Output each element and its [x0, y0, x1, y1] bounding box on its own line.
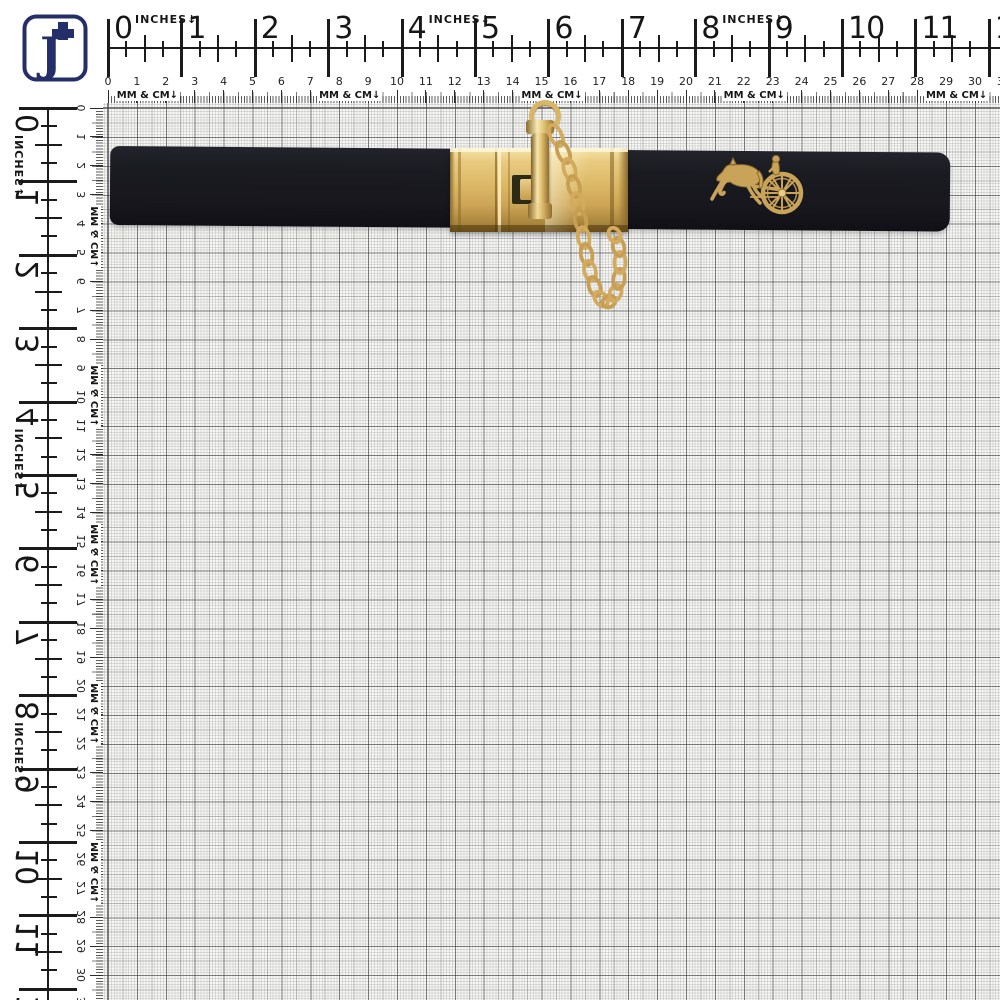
cm-number: 26 — [849, 75, 869, 88]
cm-number: 29 — [936, 75, 956, 88]
cm-number: 18 — [75, 618, 88, 638]
cm-number: 8 — [329, 75, 349, 88]
inch-number: 2 — [11, 261, 46, 279]
inch-half-tick — [951, 35, 953, 62]
inch-major-tick — [621, 19, 624, 77]
inch-quarter-tick — [41, 749, 57, 751]
inch-major-tick — [19, 401, 77, 404]
inch-quarter-tick — [41, 235, 57, 237]
cm-number: 10 — [75, 387, 88, 407]
inch-major-tick — [841, 19, 844, 77]
buckle-groove — [508, 148, 510, 232]
cm-tick — [90, 975, 103, 976]
cm-tick — [281, 90, 282, 103]
inch-quarter-tick — [41, 382, 57, 384]
carriage-wheel — [763, 174, 801, 212]
buckle-fold-line — [458, 148, 461, 232]
cm-tick — [90, 194, 103, 195]
inch-number: 7 — [11, 628, 46, 646]
cm-number: 10 — [387, 75, 407, 88]
inch-half-tick — [731, 35, 733, 62]
inch-quarter-tick — [713, 41, 715, 57]
inch-quarter-tick — [41, 639, 57, 641]
inch-half-tick — [35, 217, 62, 219]
cm-tick — [310, 90, 311, 103]
chain-link — [606, 226, 623, 245]
cm-number: 7 — [75, 300, 88, 320]
cm-tick — [483, 90, 484, 103]
inch-major-tick — [547, 19, 550, 77]
inch-half-tick — [35, 584, 62, 586]
cm-tick — [830, 90, 831, 103]
cm-number: 31 — [75, 994, 88, 1000]
left-ruler-strip: 0123456789101112INCHES↓INCHES↓INCHES↓012… — [0, 108, 103, 1000]
inch-quarter-tick — [419, 41, 421, 57]
cm-number: 2 — [156, 75, 176, 88]
cm-number: 22 — [75, 734, 88, 754]
inch-number: 6 — [554, 11, 572, 46]
inch-half-tick — [364, 35, 366, 62]
cm-tick — [90, 772, 103, 773]
inch-half-tick — [35, 511, 62, 513]
cm-number: 31 — [994, 75, 1000, 88]
cm-number: 17 — [589, 75, 609, 88]
cm-number: 19 — [647, 75, 667, 88]
inch-quarter-tick — [933, 41, 935, 57]
inch-major-tick — [19, 621, 77, 624]
inch-number: 3 — [334, 11, 352, 46]
cm-tick — [108, 90, 109, 103]
cm-tick — [90, 512, 103, 513]
inch-major-tick — [327, 19, 330, 77]
cm-number: 28 — [907, 75, 927, 88]
cm-number: 12 — [445, 75, 465, 88]
cm-tick — [90, 281, 103, 282]
inch-quarter-tick — [41, 602, 57, 604]
cm-number: 30 — [965, 75, 985, 88]
cm-tick — [90, 599, 103, 600]
inch-quarter-tick — [125, 41, 127, 57]
inch-number: 0 — [11, 114, 46, 132]
cm-number: 25 — [821, 75, 841, 88]
inch-quarter-tick — [566, 41, 568, 57]
inch-half-tick — [35, 437, 62, 439]
cm-number: 13 — [75, 474, 88, 494]
cm-number: 11 — [416, 75, 436, 88]
cm-number: 28 — [75, 907, 88, 927]
inch-quarter-tick — [41, 969, 57, 971]
cm-number: 16 — [75, 560, 88, 580]
inch-quarter-tick — [41, 933, 57, 935]
cm-number: 0 — [98, 75, 118, 88]
cm-number: 6 — [271, 75, 291, 88]
inch-quarter-tick — [41, 492, 57, 494]
inch-quarter-tick — [41, 676, 57, 678]
cm-tick — [194, 90, 195, 103]
cm-tick — [90, 483, 103, 484]
cm-number: 5 — [75, 243, 88, 263]
cm-number: 14 — [75, 503, 88, 523]
inch-half-tick — [144, 35, 146, 62]
cm-number: 23 — [75, 763, 88, 783]
logo-cross-stem — [58, 22, 68, 40]
inch-number: 2 — [261, 11, 279, 46]
buckle-crease-dark — [495, 148, 497, 232]
inch-major-tick — [19, 107, 77, 110]
inch-number: 4 — [11, 408, 46, 426]
inches-unit-label: INCHES↓ — [722, 13, 784, 26]
inch-quarter-tick — [41, 566, 57, 568]
buckle-chain — [535, 95, 630, 330]
cm-tick — [397, 90, 398, 103]
inch-major-tick — [914, 19, 917, 77]
cm-number: 22 — [734, 75, 754, 88]
cm-number: 27 — [75, 878, 88, 898]
mm-cm-unit-label: MM & CM↓ — [90, 682, 101, 745]
inch-major-tick — [19, 547, 77, 550]
cm-number: 2 — [75, 156, 88, 176]
cm-tick — [714, 90, 715, 103]
cm-tick — [425, 90, 426, 103]
inch-major-tick — [19, 180, 77, 183]
inch-quarter-tick — [41, 823, 57, 825]
inch-major-tick — [19, 768, 77, 771]
cm-number: 13 — [474, 75, 494, 88]
cm-tick — [90, 454, 103, 455]
inch-quarter-tick — [41, 456, 57, 458]
cm-tick — [252, 90, 253, 103]
inch-major-tick — [19, 988, 77, 991]
horse-figure — [712, 158, 763, 203]
cm-tick — [90, 946, 103, 947]
inch-number: 6 — [11, 554, 46, 572]
cm-number: 23 — [763, 75, 783, 88]
cm-tick — [90, 339, 103, 340]
cm-number: 19 — [75, 647, 88, 667]
cm-tick — [90, 310, 103, 311]
cm-number: 4 — [214, 75, 234, 88]
cm-tick — [888, 90, 889, 103]
ruler-baseline — [108, 47, 1000, 49]
inch-quarter-tick — [309, 41, 311, 57]
cm-number: 6 — [75, 271, 88, 291]
carriage-driver — [769, 155, 780, 175]
cm-number: 5 — [243, 75, 263, 88]
cm-number: 18 — [618, 75, 638, 88]
cm-tick — [512, 90, 513, 103]
inch-number: 8 — [11, 701, 46, 719]
inch-quarter-tick — [41, 896, 57, 898]
inch-number: 0 — [114, 11, 132, 46]
cm-number: 24 — [792, 75, 812, 88]
horse-carriage-emblem-icon — [710, 149, 812, 217]
cm-number: 20 — [676, 75, 696, 88]
cm-number: 8 — [75, 329, 88, 349]
inch-quarter-tick — [602, 41, 604, 57]
inch-major-tick — [19, 327, 77, 330]
buckle-left-edge — [450, 148, 455, 232]
inch-quarter-tick — [456, 41, 458, 57]
inch-major-tick — [768, 19, 771, 77]
inch-quarter-tick — [199, 41, 201, 57]
inch-major-tick — [19, 254, 77, 257]
inch-quarter-tick — [41, 309, 57, 311]
inch-quarter-tick — [382, 41, 384, 57]
inch-major-tick — [19, 841, 77, 844]
cm-number: 30 — [75, 965, 88, 985]
inch-major-tick — [474, 19, 477, 77]
cm-tick — [917, 90, 918, 103]
mm-cm-unit-label: MM & CM↓ — [318, 90, 381, 101]
inch-half-tick — [584, 35, 586, 62]
inch-half-tick — [511, 35, 513, 62]
cm-number: 15 — [532, 75, 552, 88]
cm-tick — [859, 90, 860, 103]
mm-cm-unit-label: MM & CM↓ — [90, 205, 101, 268]
inch-major-tick — [107, 19, 110, 77]
cm-number: 21 — [75, 705, 88, 725]
inch-half-tick — [217, 35, 219, 62]
inch-number: 12 — [11, 995, 46, 1000]
inch-quarter-tick — [896, 41, 898, 57]
inch-half-tick — [804, 35, 806, 62]
inches-unit-label: INCHES↓ — [13, 429, 26, 491]
cm-tick — [90, 136, 103, 137]
cm-number: 9 — [75, 358, 88, 378]
inch-major-tick — [180, 19, 183, 77]
cm-number: 9 — [358, 75, 378, 88]
cm-number: 26 — [75, 849, 88, 869]
inch-number: 7 — [628, 11, 646, 46]
inch-major-tick — [694, 19, 697, 77]
inch-major-tick — [254, 19, 257, 77]
inch-quarter-tick — [749, 41, 751, 57]
cm-number: 4 — [75, 214, 88, 234]
cm-number: 17 — [75, 589, 88, 609]
cm-number: 15 — [75, 532, 88, 552]
inch-half-tick — [35, 951, 62, 953]
inch-half-tick — [878, 35, 880, 62]
cm-number: 11 — [75, 416, 88, 436]
mm-cm-unit-label: MM & CM↓ — [90, 364, 101, 427]
inch-major-tick — [19, 914, 77, 917]
inch-quarter-tick — [529, 41, 531, 57]
cm-tick — [801, 90, 802, 103]
inch-major-tick — [401, 19, 404, 77]
cm-tick — [223, 90, 224, 103]
product-measurement-photo: 0123456789101112INCHES↓INCHES↓INCHES↓012… — [0, 0, 1000, 1000]
inch-quarter-tick — [41, 346, 57, 348]
inch-quarter-tick — [272, 41, 274, 57]
cm-number: 3 — [185, 75, 205, 88]
cm-number: 29 — [75, 936, 88, 956]
inch-major-tick — [19, 694, 77, 697]
inch-half-tick — [35, 878, 62, 880]
inch-half-tick — [35, 804, 62, 806]
cm-tick — [90, 657, 103, 658]
inch-number: 12 — [995, 11, 1000, 46]
cm-tick — [90, 917, 103, 918]
cm-tick — [657, 90, 658, 103]
cm-number: 20 — [75, 676, 88, 696]
cm-tick — [454, 90, 455, 103]
inch-half-tick — [35, 144, 62, 146]
mm-cm-unit-label: MM & CM↓ — [90, 523, 101, 586]
cm-number: 14 — [503, 75, 523, 88]
inch-half-tick — [35, 658, 62, 660]
inches-unit-label: INCHES↓ — [13, 722, 26, 784]
inch-half-tick — [35, 731, 62, 733]
mm-cm-unit-label: MM & CM↓ — [723, 90, 786, 101]
inch-number: 4 — [408, 11, 426, 46]
inch-quarter-tick — [823, 41, 825, 57]
inch-number: 8 — [701, 11, 719, 46]
mm-cm-unit-label: MM & CM↓ — [925, 90, 988, 101]
cm-tick — [90, 801, 103, 802]
inch-quarter-tick — [235, 41, 237, 57]
inch-quarter-tick — [41, 162, 57, 164]
cm-number: 27 — [878, 75, 898, 88]
inch-half-tick — [291, 35, 293, 62]
brand-logo: J — [22, 14, 88, 82]
left-ruler: 0123456789101112INCHES↓INCHES↓INCHES↓012… — [0, 108, 103, 1000]
cm-number: 0 — [75, 98, 88, 118]
inch-quarter-tick — [969, 41, 971, 57]
inch-quarter-tick — [492, 41, 494, 57]
cm-number: 25 — [75, 821, 88, 841]
top-ruler: 0123456789101112INCHES↓INCHES↓INCHES↓012… — [108, 0, 1000, 103]
cm-number: 7 — [300, 75, 320, 88]
cm-number: 1 — [127, 75, 147, 88]
mm-cm-unit-label: MM & CM↓ — [90, 841, 101, 904]
inch-quarter-tick — [786, 41, 788, 57]
inch-quarter-tick — [41, 272, 57, 274]
cm-number: 1 — [75, 127, 88, 147]
cm-number: 21 — [705, 75, 725, 88]
inch-quarter-tick — [639, 41, 641, 57]
mm-cm-unit-label: MM & CM↓ — [116, 90, 179, 101]
cm-number: 3 — [75, 185, 88, 205]
inch-quarter-tick — [41, 199, 57, 201]
inch-half-tick — [35, 291, 62, 293]
inch-quarter-tick — [676, 41, 678, 57]
inch-quarter-tick — [41, 786, 57, 788]
cm-tick — [90, 108, 103, 109]
cm-tick — [90, 830, 103, 831]
cm-tick — [686, 90, 687, 103]
inch-number: 3 — [11, 334, 46, 352]
inch-quarter-tick — [346, 41, 348, 57]
cm-tick — [90, 165, 103, 166]
inches-unit-label: INCHES↓ — [135, 13, 197, 26]
inch-quarter-tick — [41, 125, 57, 127]
cm-number: 24 — [75, 792, 88, 812]
inch-quarter-tick — [41, 419, 57, 421]
inch-major-tick — [19, 474, 77, 477]
inch-major-tick — [988, 19, 991, 77]
buckle-crease-light — [498, 148, 501, 232]
inch-quarter-tick — [41, 713, 57, 715]
inch-half-tick — [658, 35, 660, 62]
inches-unit-label: INCHES↓ — [429, 13, 491, 26]
cm-number: 16 — [560, 75, 580, 88]
inches-unit-label: INCHES↓ — [13, 135, 26, 197]
cm-number: 12 — [75, 445, 88, 465]
cm-tick — [90, 628, 103, 629]
inch-half-tick — [437, 35, 439, 62]
ruler-baseline — [47, 108, 49, 1000]
inch-half-tick — [35, 364, 62, 366]
inch-quarter-tick — [41, 859, 57, 861]
inch-quarter-tick — [41, 529, 57, 531]
inch-quarter-tick — [162, 41, 164, 57]
inch-quarter-tick — [859, 41, 861, 57]
